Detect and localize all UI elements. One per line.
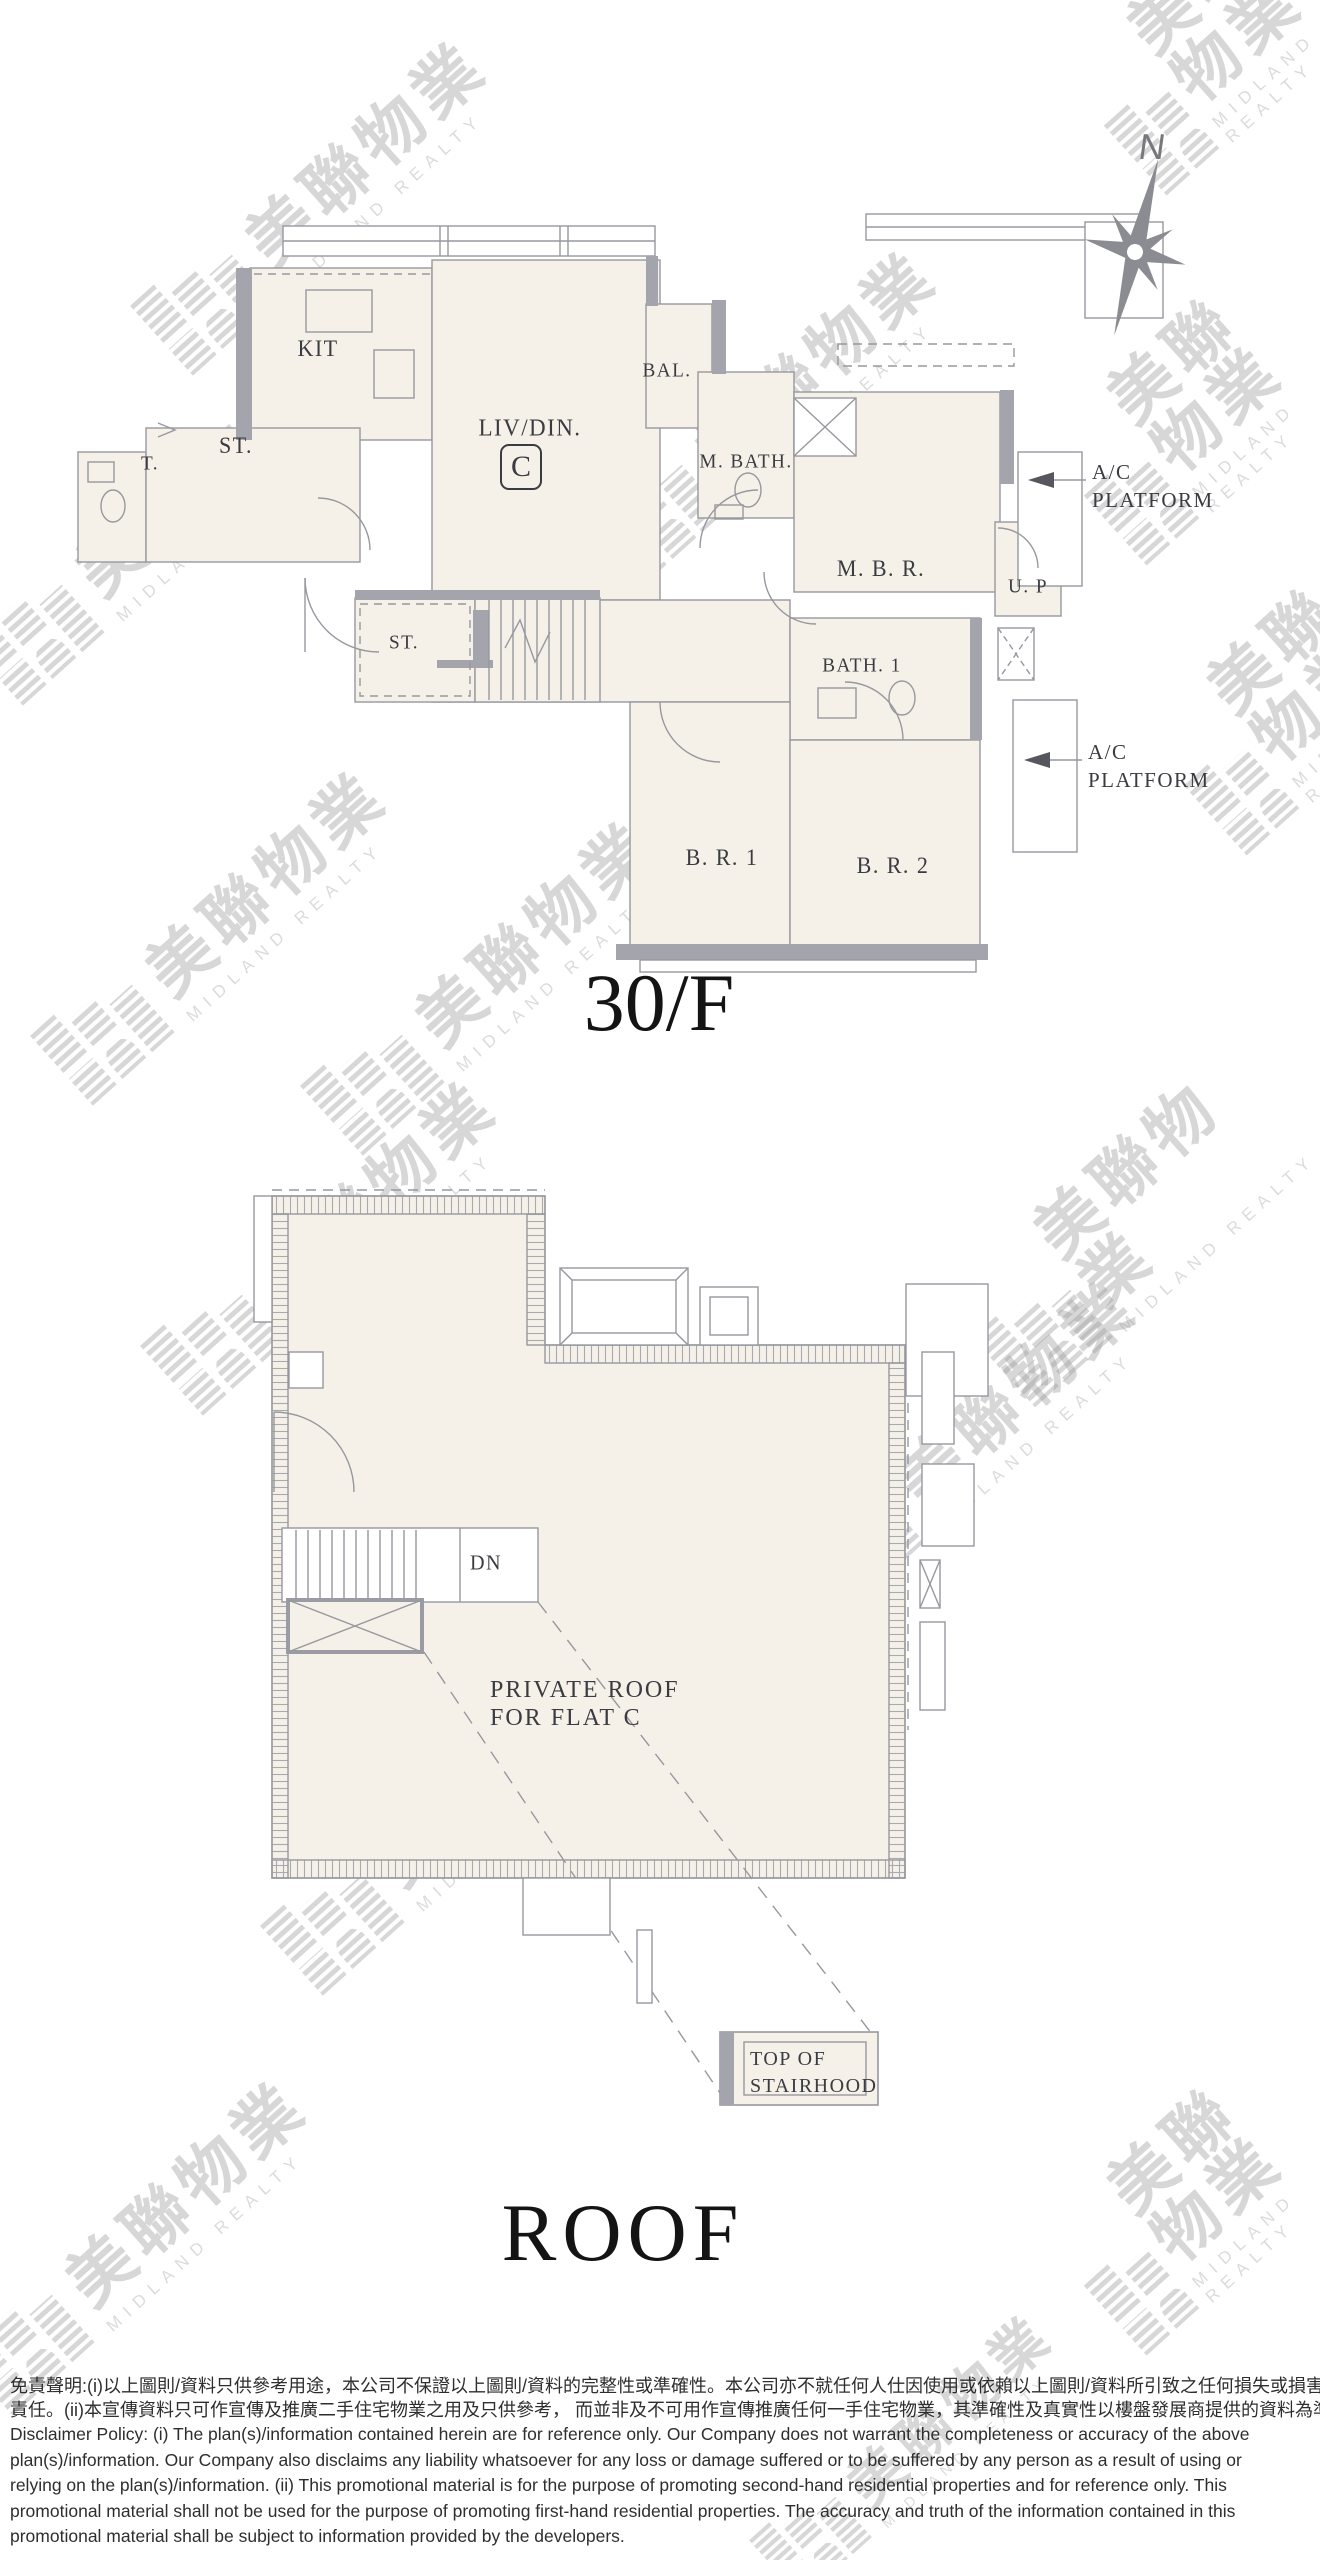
flat-marker-badge: C [500,444,542,490]
stair-down-label: DN [470,1551,502,1576]
room-label-bath1: BATH. 1 [822,655,901,678]
top-of-stairhood-label: TOP OF STAIRHOOD [750,2046,877,2100]
ac-platform-label-lower: A/C PLATFORM [1088,738,1210,794]
disclaimer-line: 責任。(ii)本宣傳資料只可作宣傳及推廣二手住宅物業之用及只供參考， 而並非及不… [10,2398,1314,2422]
disclaimer-line: 免責聲明:(i)以上圖則/資料只供參考用途，本公司不保證以上圖則/資料的完整性或… [10,2374,1314,2398]
plan-roof-group [254,1190,988,2105]
disclaimer-line: Disclaimer Policy: (i) The plan(s)/infor… [10,2422,1314,2448]
room-label-bedroom1: B. R. 1 [686,845,759,871]
room-label-utility-platform: U. P [1008,576,1048,599]
room-label-master-bath: M. BATH. [699,451,792,474]
room-label-living-dining: LIV/DIN. [478,416,581,443]
disclaimer-block: 免責聲明:(i)以上圖則/資料只供參考用途，本公司不保證以上圖則/資料的完整性或… [10,2374,1314,2550]
room-label-store-upper: ST. [219,433,253,459]
disclaimer-line: promotional material shall not be used f… [10,2499,1314,2525]
private-roof-label: PRIVATE ROOF FOR FLAT C [490,1676,680,1732]
north-compass-icon [1054,144,1219,351]
plan-roof-caption: ROOF [502,2186,745,2280]
room-label-master-bedroom: M. B. R. [837,556,925,582]
room-label-toilet: T. [141,453,159,476]
plan-30f-group [78,214,1163,972]
room-label-bedroom2: B. R. 2 [857,853,930,879]
ac-platform-label-upper: A/C PLATFORM [1092,458,1214,514]
disclaimer-line: relying on the plan(s)/information. (ii)… [10,2473,1314,2499]
room-label-kitchen: KIT [297,336,338,362]
disclaimer-line: promotional material shall be subject to… [10,2524,1314,2550]
disclaimer-line: plan(s)/information. Our Company also di… [10,2448,1314,2474]
floor-plan-page: 美聯物業 MIDLAND REALTY 美聯物業MIDLAND REALTY 美… [0,0,1320,2560]
room-label-balcony: BAL. [643,360,692,383]
room-label-store-lower: ST. [389,632,419,655]
plan-30f-caption: 30/F [584,956,734,1050]
floor-plan-linework [0,0,1320,2560]
